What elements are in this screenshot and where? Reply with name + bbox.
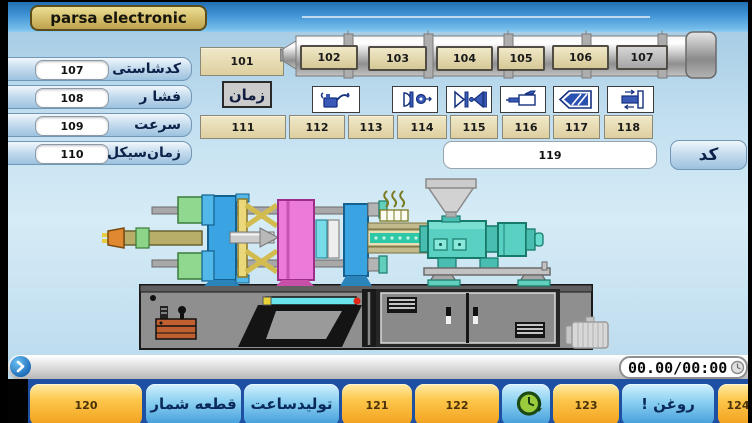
mold-close-icon <box>451 89 487 110</box>
param-row-cycletime[interactable]: 110 زمان‌سیکل <box>0 141 192 165</box>
hmi-screen: parsa electronic 107 کدشاستی 108 فشا ر 1… <box>0 0 752 423</box>
time-value-field[interactable]: 101 <box>200 47 284 76</box>
softkey-123[interactable]: 123 <box>553 384 619 423</box>
chevron-right-icon <box>15 360 26 373</box>
carriage-move-icon <box>613 89 649 110</box>
param-value-field[interactable]: 107 <box>35 60 109 80</box>
screen-frame <box>0 0 752 2</box>
value-field-111[interactable]: 111 <box>200 115 286 139</box>
lubrication-button[interactable] <box>312 86 360 113</box>
timer-value: 00.00/00:00 <box>628 359 727 377</box>
machine-graphic <box>90 176 620 354</box>
param-value-field[interactable]: 108 <box>35 88 109 108</box>
softkey-124[interactable]: 124 <box>718 384 752 423</box>
zone-button-107[interactable]: 107 <box>616 45 668 70</box>
softkey-122[interactable]: 122 <box>415 384 499 423</box>
param-row-setcode[interactable]: 107 کدشاستی <box>0 57 192 81</box>
param-row-pressure[interactable]: 108 فشا ر <box>0 85 192 109</box>
value-field-113[interactable]: 113 <box>348 115 394 139</box>
param-label: فشا ر <box>139 86 181 108</box>
screw-charge-button[interactable] <box>553 86 599 113</box>
cycle-timer-display: 00.00/00:00 <box>619 356 748 379</box>
oil-can-icon <box>317 89 355 110</box>
title-bar-divider <box>302 16 650 18</box>
code-button[interactable]: کد <box>670 140 747 170</box>
value-field-117[interactable]: 117 <box>553 115 600 139</box>
screen-frame <box>0 0 8 423</box>
brand-title: parsa electronic <box>50 9 187 27</box>
mold-eject-button[interactable] <box>392 86 438 113</box>
mold-close-button[interactable] <box>446 86 492 113</box>
screw-charge-arrow-icon <box>558 89 594 110</box>
injection-unit-icon <box>505 89 541 110</box>
softkey-120[interactable]: 120 <box>30 384 142 423</box>
softkey-oil[interactable]: روغن ! <box>622 384 714 423</box>
softkey-121[interactable]: 121 <box>342 384 412 423</box>
value-field-116[interactable]: 116 <box>502 115 550 139</box>
param-label: کدشاستی <box>112 58 181 80</box>
zone-button-105[interactable]: 105 <box>497 46 545 71</box>
zone-button-103[interactable]: 103 <box>368 46 427 71</box>
next-page-button[interactable] <box>10 356 31 377</box>
param-row-speed[interactable]: 109 سرعت <box>0 113 192 137</box>
clock-icon <box>730 360 745 375</box>
time-label: زمان <box>222 81 272 108</box>
value-field-112[interactable]: 112 <box>289 115 345 139</box>
param-value-field[interactable]: 110 <box>35 144 109 164</box>
brand-badge: parsa electronic <box>30 5 207 31</box>
value-field-114[interactable]: 114 <box>397 115 447 139</box>
param-value-field[interactable]: 109 <box>35 116 109 136</box>
value-field-118[interactable]: 118 <box>604 115 653 139</box>
param-label: زمان‌سیکل <box>107 142 181 164</box>
zone-button-106[interactable]: 106 <box>552 45 609 70</box>
value-field-115[interactable]: 115 <box>450 115 498 139</box>
softkey-production-hour[interactable]: تولیدساعت <box>244 384 339 423</box>
param-label: سرعت <box>134 114 181 136</box>
code-value-field[interactable]: 119 <box>443 141 657 169</box>
zone-button-102[interactable]: 102 <box>300 45 358 70</box>
carriage-move-button[interactable] <box>607 86 654 113</box>
zone-button-104[interactable]: 104 <box>436 46 493 71</box>
green-clock-icon[interactable] <box>516 390 543 417</box>
mold-open-eject-icon <box>397 89 433 110</box>
screen-frame <box>748 0 752 423</box>
softkey-piece-counter[interactable]: قطعه شمار <box>146 384 241 423</box>
injection-button[interactable] <box>500 86 546 113</box>
